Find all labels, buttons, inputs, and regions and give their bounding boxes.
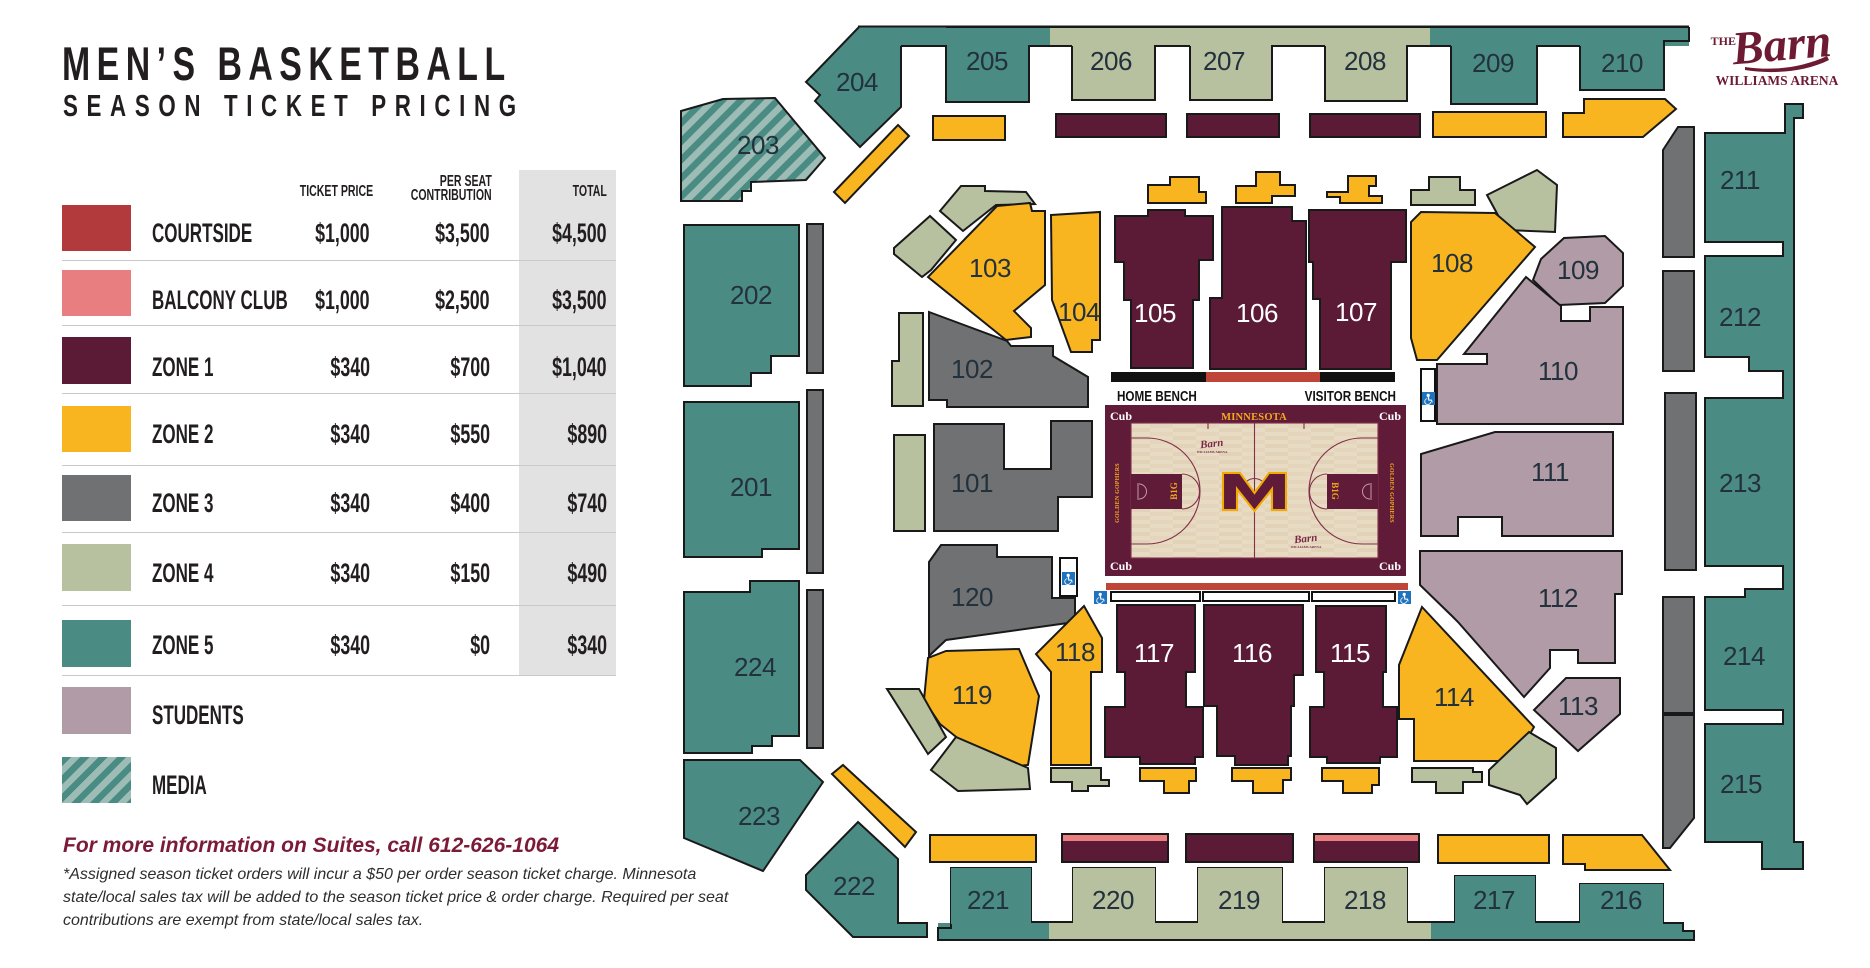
svg-text:113: 113 [1558, 691, 1598, 721]
svg-text:MINNESOTA: MINNESOTA [1221, 412, 1287, 423]
svg-text:204: 204 [836, 67, 878, 97]
svg-text:218: 218 [1344, 885, 1386, 915]
svg-text:119: 119 [952, 680, 992, 710]
svg-text:206: 206 [1090, 46, 1132, 76]
svg-text:213: 213 [1719, 468, 1761, 498]
svg-text:210: 210 [1601, 48, 1643, 78]
svg-text:101: 101 [951, 468, 993, 498]
svg-text:201: 201 [730, 472, 772, 502]
svg-text:Cub: Cub [1379, 559, 1401, 573]
svg-text:208: 208 [1344, 46, 1386, 76]
svg-text:202: 202 [730, 280, 772, 310]
svg-text:221: 221 [967, 885, 1009, 915]
svg-text:112: 112 [1538, 583, 1578, 613]
svg-text:223: 223 [738, 801, 780, 831]
svg-text:WILLIAMS ARENA: WILLIAMS ARENA [1716, 73, 1839, 88]
svg-text:103: 103 [969, 253, 1011, 283]
svg-text:120: 120 [951, 582, 993, 612]
svg-text:107: 107 [1335, 297, 1377, 327]
svg-text:VISITOR BENCH: VISITOR BENCH [1305, 388, 1396, 405]
svg-text:216: 216 [1600, 885, 1642, 915]
svg-text:WILLIAMS ARENA: WILLIAMS ARENA [1291, 545, 1322, 549]
svg-text:Cub: Cub [1379, 409, 1401, 423]
svg-text:108: 108 [1431, 248, 1473, 278]
svg-text:118: 118 [1055, 637, 1095, 667]
svg-text:Cub: Cub [1110, 409, 1132, 423]
svg-text:106: 106 [1236, 298, 1278, 328]
svg-text:Barn: Barn [1729, 15, 1833, 76]
svg-text:217: 217 [1473, 885, 1515, 915]
svg-text:Cub: Cub [1110, 559, 1132, 573]
svg-text:212: 212 [1719, 302, 1761, 332]
svg-text:203: 203 [737, 130, 779, 160]
svg-text:B1G: B1G [1330, 482, 1340, 500]
svg-text:104: 104 [1058, 297, 1100, 327]
svg-text:209: 209 [1472, 48, 1514, 78]
svg-text:HOME BENCH: HOME BENCH [1117, 388, 1197, 405]
svg-text:110: 110 [1538, 356, 1578, 386]
svg-text:102: 102 [951, 354, 993, 384]
svg-text:116: 116 [1232, 638, 1272, 668]
svg-text:105: 105 [1134, 298, 1176, 328]
svg-text:211: 211 [1720, 165, 1760, 195]
svg-text:215: 215 [1720, 769, 1762, 799]
svg-text:205: 205 [966, 46, 1008, 76]
svg-text:214: 214 [1723, 641, 1765, 671]
svg-text:115: 115 [1330, 638, 1370, 668]
svg-text:GOLDEN GOPHERS: GOLDEN GOPHERS [1115, 463, 1121, 523]
svg-text:GOLDEN GOPHERS: GOLDEN GOPHERS [1388, 463, 1394, 523]
svg-text:117: 117 [1134, 638, 1174, 668]
svg-text:220: 220 [1092, 885, 1134, 915]
svg-text:222: 222 [833, 871, 875, 901]
svg-text:114: 114 [1434, 682, 1474, 712]
svg-text:207: 207 [1203, 46, 1245, 76]
svg-text:WILLIAMS ARENA: WILLIAMS ARENA [1197, 450, 1228, 454]
svg-text:111: 111 [1531, 457, 1569, 487]
svg-text:109: 109 [1557, 255, 1599, 285]
svg-text:224: 224 [734, 652, 776, 682]
svg-text:219: 219 [1218, 885, 1260, 915]
svg-text:B1G: B1G [1169, 482, 1179, 500]
